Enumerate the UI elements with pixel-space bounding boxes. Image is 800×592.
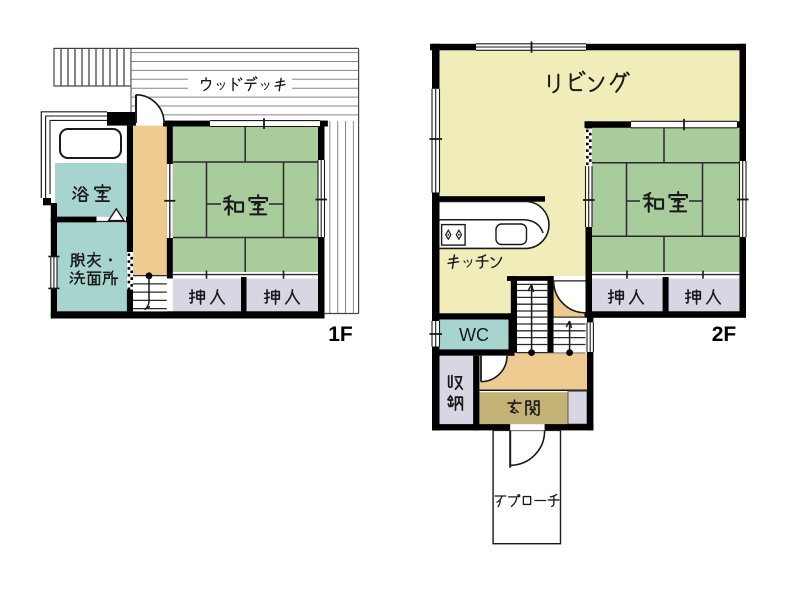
svg-text:WC: WC <box>459 325 489 345</box>
svg-text:2F: 2F <box>712 323 737 346</box>
svg-text:1F: 1F <box>328 323 353 346</box>
